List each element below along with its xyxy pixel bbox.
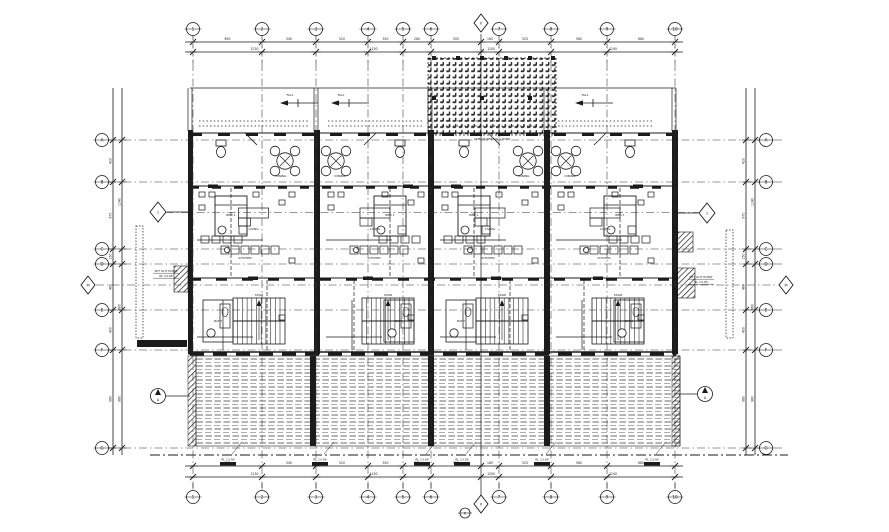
svg-text:9: 9 [606,494,609,499]
svg-text:RL 13.90: RL 13.90 [645,458,658,462]
wardrobe-row [444,236,485,243]
unit-1-plan: DININGLIVINGKITCHENBED 1BATHSTAIR [197,121,308,350]
svg-text:STAIR: STAIR [384,293,393,297]
svg-text:150: 150 [109,254,113,260]
deck-area [150,356,788,455]
svg-text:4: 4 [367,494,370,499]
svg-text:400: 400 [109,327,113,333]
svg-text:M: M [784,283,787,287]
svg-text:1240: 1240 [118,198,122,206]
svg-text:860: 860 [118,304,122,310]
svg-text:1: 1 [706,211,708,215]
svg-text:1240: 1240 [609,472,617,476]
toilet-fixture [216,140,226,158]
svg-text:1: 1 [192,494,195,499]
svg-text:6: 6 [430,26,433,31]
svg-text:980: 980 [109,396,113,402]
svg-text:6: 6 [430,494,433,499]
kitchen-bench [350,246,408,254]
pergola-trellis [428,56,556,135]
svg-text:A: A [765,137,768,142]
kitchen-bench [221,246,279,254]
svg-text:BED 1: BED 1 [385,213,394,217]
svg-text:280: 280 [414,37,420,41]
svg-text:KITCHEN: KITCHEN [239,256,252,260]
svg-text:G: G [764,445,767,450]
svg-text:1240: 1240 [609,47,617,51]
dining-table-set [551,146,581,176]
svg-text:RL 13.90: RL 13.90 [535,458,548,462]
svg-text:RL 13.95: RL 13.95 [159,274,172,278]
svg-text:10: 10 [672,26,678,31]
svg-text:10: 10 [672,494,678,499]
wardrobe-row [379,236,420,243]
svg-text:1150: 1150 [370,472,378,476]
svg-text:150: 150 [742,254,746,260]
svg-text:FALL: FALL [338,93,345,97]
svg-text:BATH: BATH [625,319,633,323]
svg-text:DINING: DINING [335,174,347,178]
cad-floor-plan-sheet: RL 13.90RL 13.90RL 13.90RL 13.85RL 13.90… [0,0,889,532]
svg-text:180: 180 [487,37,493,41]
svg-text:LINE OF PERGOLA OVER: LINE OF PERGOLA OVER [474,137,510,141]
svg-text:500: 500 [453,461,459,465]
wardrobe-row [201,236,242,243]
svg-text:670: 670 [742,213,746,219]
svg-text:SET OUT POINT: SET OUT POINT [689,275,712,279]
svg-text:500: 500 [453,37,459,41]
svg-text:A: A [101,137,104,142]
svg-text:LIVING: LIVING [485,227,496,231]
svg-text:BATH: BATH [395,319,403,323]
toilet-fixture [459,140,469,158]
svg-text:7: 7 [498,26,501,31]
wardrobe-row [609,236,650,243]
svg-text:5: 5 [402,26,405,31]
svg-text:180: 180 [487,461,493,465]
svg-text:BED 1: BED 1 [226,213,235,217]
svg-text:350: 350 [383,461,389,465]
svg-text:1240: 1240 [751,198,755,206]
svg-text:560: 560 [576,461,582,465]
svg-text:RL 13.90: RL 13.90 [313,458,326,462]
svg-text:KITCHEN: KITCHEN [482,256,495,260]
svg-text:2: 2 [261,26,264,31]
svg-text:1: 1 [192,26,195,31]
svg-text:8: 8 [550,494,553,499]
svg-text:BED 1: BED 1 [469,213,478,217]
svg-text:400: 400 [742,327,746,333]
svg-text:C: C [765,246,768,251]
svg-text:RL 13.95: RL 13.95 [694,280,707,284]
svg-text:680: 680 [638,37,644,41]
toilet-fixture [625,140,635,158]
svg-text:980: 980 [742,396,746,402]
svg-text:680: 680 [638,461,644,465]
dining-table-set [321,146,351,176]
svg-text:BATH: BATH [214,319,222,323]
svg-text:M: M [86,283,89,287]
svg-text:B: B [101,179,104,184]
svg-text:670: 670 [109,213,113,219]
svg-text:1150: 1150 [370,47,378,51]
svg-text:BATH: BATH [457,319,465,323]
kitchen-bench [464,246,522,254]
svg-text:2: 2 [261,494,264,499]
svg-text:LIVING: LIVING [248,227,259,231]
svg-text:420: 420 [742,158,746,164]
svg-text:7: 7 [498,494,501,499]
unit-3-plan: DININGLIVINGKITCHENBED 1BATHSTAIR [440,121,543,350]
svg-text:G: G [100,445,103,450]
svg-text:420: 420 [109,158,113,164]
unit-4-plan: DININGLIVINGKITCHENBED 1BATHSTAIR [551,121,654,350]
svg-text:860: 860 [751,304,755,310]
svg-text:D: D [764,261,767,266]
svg-text:690: 690 [225,461,231,465]
svg-text:1: 1 [157,210,159,214]
unit-2-plan: DININGLIVINGKITCHENBED 1BATHSTAIR [321,121,424,350]
dining-table-set [513,146,543,176]
svg-text:8: 8 [550,26,553,31]
svg-text:280: 280 [414,461,420,465]
svg-text:DINING: DINING [276,174,288,178]
svg-text:3: 3 [315,26,318,31]
svg-text:9: 9 [606,26,609,31]
svg-text:E: E [765,307,768,312]
svg-text:FALL: FALL [287,93,294,97]
svg-text:FALL: FALL [582,93,589,97]
svg-text:560: 560 [576,37,582,41]
svg-text:KITCHEN: KITCHEN [598,256,611,260]
svg-text:690: 690 [225,37,231,41]
svg-text:980: 980 [751,396,755,402]
svg-text:520: 520 [339,37,345,41]
kitchen-bench [580,246,638,254]
svg-text:B: B [765,179,768,184]
svg-text:1200: 1200 [487,47,495,51]
svg-text:C: C [101,246,104,251]
svg-text:3: 3 [315,494,318,499]
svg-text:BED 1: BED 1 [615,213,624,217]
svg-text:4: 4 [367,26,370,31]
svg-text:1230: 1230 [251,472,259,476]
svg-text:520: 520 [522,37,528,41]
svg-text:LIVING: LIVING [600,227,611,231]
svg-text:520: 520 [522,461,528,465]
svg-text:460: 460 [109,284,113,290]
svg-text:E: E [101,307,104,312]
svg-text:5: 5 [402,494,405,499]
svg-text:KITCHEN: KITCHEN [368,256,381,260]
svg-text:980: 980 [118,396,122,402]
svg-text:540: 540 [286,461,292,465]
dining-table-set [270,146,300,176]
svg-text:LIVING: LIVING [370,227,381,231]
svg-text:STAIR: STAIR [614,293,623,297]
svg-text:520: 520 [339,461,345,465]
svg-text:1200: 1200 [487,472,495,476]
toilet-fixture [395,140,405,158]
svg-text:350: 350 [383,37,389,41]
svg-text:460: 460 [742,284,746,290]
svg-text:540: 540 [286,37,292,41]
svg-text:1230: 1230 [251,47,259,51]
svg-text:D: D [100,261,103,266]
floor-plan-svg: RL 13.90RL 13.90RL 13.90RL 13.85RL 13.90… [0,0,889,532]
svg-text:DINING: DINING [565,174,577,178]
svg-text:SET OUT POINT: SET OUT POINT [154,269,177,273]
svg-text:DINING: DINING [519,174,531,178]
